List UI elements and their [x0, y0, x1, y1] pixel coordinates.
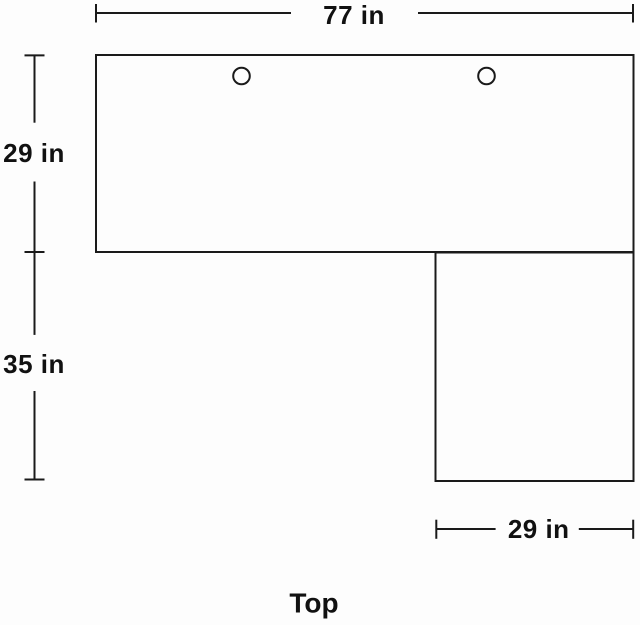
svg-text:77 in: 77 in: [323, 0, 385, 30]
svg-text:Top: Top: [289, 588, 338, 619]
svg-text:35 in: 35 in: [3, 349, 65, 379]
svg-text:29 in: 29 in: [3, 138, 65, 168]
svg-text:29 in: 29 in: [508, 514, 570, 544]
